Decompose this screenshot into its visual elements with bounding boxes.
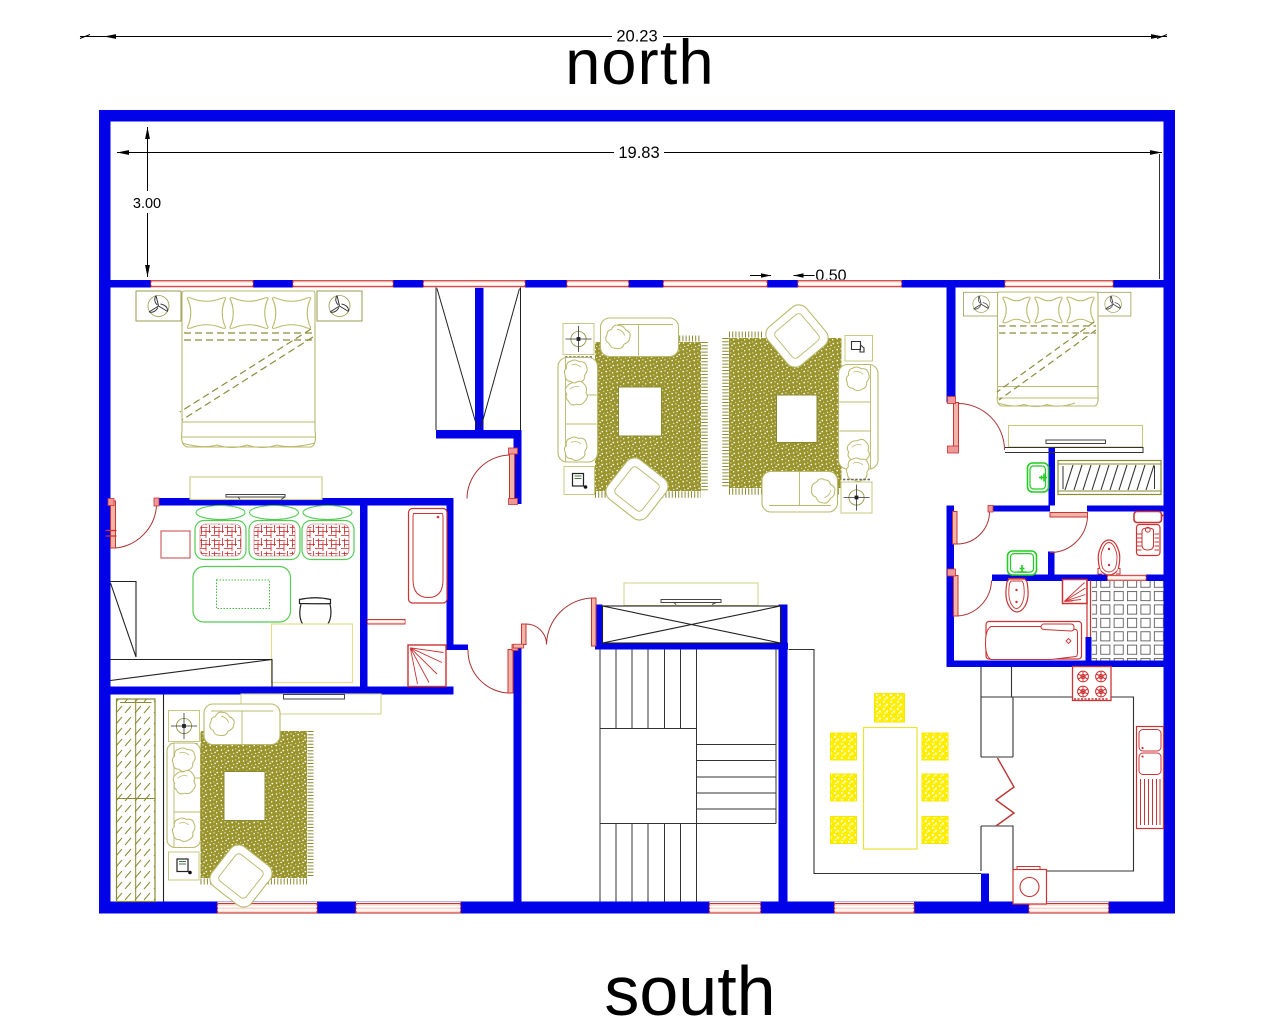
svg-text:south: south [604, 952, 775, 1024]
svg-text:north: north [565, 28, 715, 98]
svg-text:3.00: 3.00 [133, 196, 161, 212]
svg-text:19.83: 19.83 [618, 144, 659, 162]
